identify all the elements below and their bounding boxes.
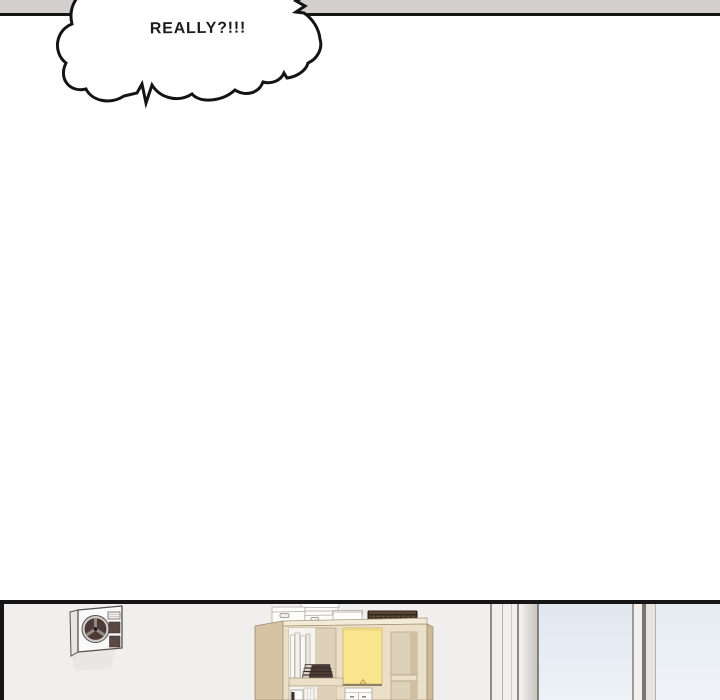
room-panel: [0, 600, 720, 700]
window-glass-pane-left: [539, 604, 632, 700]
drawer-handle: [362, 696, 366, 698]
panel-border-left: [0, 600, 4, 700]
speech-bubble-outline: [57, 0, 322, 103]
speech-bubble-text: REALLY?!!!: [124, 19, 272, 38]
window-frame-line: [517, 604, 519, 700]
drawer-unit: [345, 688, 372, 700]
stacked-books: [303, 665, 333, 679]
air-conditioner: [58, 602, 128, 674]
cube-empty-right: [391, 632, 417, 700]
yellow-sliding-door: [343, 628, 382, 686]
ac-vent-top: [108, 612, 120, 619]
window-frame-line: [511, 604, 512, 700]
ac-vent-middle: [109, 622, 120, 633]
ac-side-face: [70, 610, 78, 656]
shelf-right-side: [427, 624, 433, 700]
speech-bubble: [0, 0, 340, 120]
comic-page: REALLY?!!!: [0, 0, 720, 700]
bookshelf: [248, 600, 438, 700]
window-frame-line: [490, 604, 492, 700]
shelf-left-side: [255, 621, 283, 700]
window-frame-line: [502, 604, 503, 700]
window-jamb: [523, 604, 539, 700]
ac-fan-hub: [94, 627, 98, 631]
box-handle-hole: [280, 614, 289, 618]
ac-vent-bottom: [110, 636, 121, 647]
shelf-board: [289, 678, 343, 686]
panel-border-top: [0, 600, 720, 604]
drawer-handle: [350, 696, 354, 698]
window-mullion: [646, 604, 656, 700]
small-books: [304, 688, 314, 700]
cube-lower-left: [289, 686, 336, 700]
window-glass-pane-right: [656, 604, 720, 700]
cube-books: [289, 628, 336, 678]
